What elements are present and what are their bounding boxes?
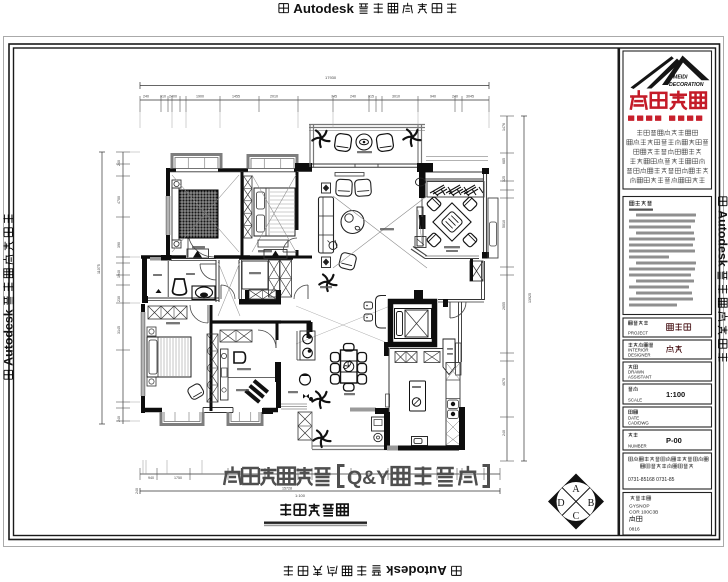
svg-text:17930: 17930 <box>325 75 337 80</box>
svg-text:Autodesk: Autodesk <box>715 210 728 267</box>
svg-text:NUMBER: NUMBER <box>628 444 647 449</box>
svg-text:DECORATION: DECORATION <box>669 82 704 88</box>
svg-text:CAD/DWG: CAD/DWG <box>628 421 649 426</box>
svg-text:390: 390 <box>117 242 121 248</box>
svg-text:11075: 11075 <box>97 264 101 274</box>
svg-text:P-00: P-00 <box>666 436 682 445</box>
svg-text:0731-85168 0731-85: 0731-85168 0731-85 <box>628 477 675 483</box>
svg-text:745: 745 <box>331 95 337 99</box>
svg-text:2400: 2400 <box>169 95 177 99</box>
svg-text:ASSISTANT: ASSISTANT <box>628 375 652 380</box>
svg-text:13925: 13925 <box>528 293 532 303</box>
svg-text:MEIDI: MEIDI <box>673 75 688 81</box>
svg-text:Autodesk: Autodesk <box>293 1 354 16</box>
svg-text:3045: 3045 <box>466 95 474 99</box>
svg-text:A: A <box>572 484 580 495</box>
svg-text:940: 940 <box>148 476 154 480</box>
svg-text:D: D <box>557 498 564 509</box>
svg-text:240: 240 <box>502 430 506 436</box>
svg-text:1750: 1750 <box>174 476 182 480</box>
svg-text:240: 240 <box>117 160 121 166</box>
svg-text:Autodesk: Autodesk <box>386 563 447 578</box>
svg-text:685: 685 <box>502 158 506 164</box>
svg-text:910: 910 <box>160 95 166 99</box>
svg-text:1900: 1900 <box>196 95 204 99</box>
svg-text:3145: 3145 <box>117 326 121 334</box>
svg-text:240: 240 <box>143 95 149 99</box>
svg-text:240: 240 <box>135 488 139 494</box>
svg-text:PROJECT: PROJECT <box>628 331 648 336</box>
svg-text:C: C <box>573 511 580 522</box>
svg-text:15728: 15728 <box>282 487 292 491</box>
svg-text:SCALE: SCALE <box>628 398 642 403</box>
svg-text:1476: 1476 <box>502 123 506 131</box>
svg-text:915: 915 <box>368 95 374 99</box>
svg-text:1940: 1940 <box>117 270 121 278</box>
svg-text:COR 100C3B: COR 100C3B <box>629 510 658 516</box>
svg-text:2010: 2010 <box>270 95 278 99</box>
svg-text:5010: 5010 <box>502 220 506 228</box>
svg-text:240: 240 <box>350 95 356 99</box>
svg-text:Autodesk: Autodesk <box>2 309 16 366</box>
svg-text:940: 940 <box>430 95 436 99</box>
svg-text:DRAWN: DRAWN <box>628 370 644 375</box>
svg-text:B: B <box>588 498 595 509</box>
svg-text:4700: 4700 <box>117 196 121 204</box>
svg-text:GYSNOP: GYSNOP <box>629 504 650 510</box>
svg-text:DATE: DATE <box>628 416 639 421</box>
svg-text:3010: 3010 <box>392 95 400 99</box>
svg-text:1:100: 1:100 <box>295 493 306 498</box>
svg-text:DESIGNER: DESIGNER <box>628 353 650 358</box>
svg-text:0816: 0816 <box>629 527 640 533</box>
svg-text:4670: 4670 <box>502 378 506 386</box>
svg-text:1:100: 1:100 <box>666 390 685 399</box>
svg-text:240: 240 <box>452 95 458 99</box>
svg-text:INTERIOR: INTERIOR <box>628 348 649 353</box>
svg-text:2655: 2655 <box>502 302 506 310</box>
svg-text:325: 325 <box>502 176 506 182</box>
svg-text:240: 240 <box>117 416 121 422</box>
svg-text:230: 230 <box>117 296 121 302</box>
svg-text:1455: 1455 <box>232 95 240 99</box>
svg-text:Q&Y: Q&Y <box>347 467 389 489</box>
